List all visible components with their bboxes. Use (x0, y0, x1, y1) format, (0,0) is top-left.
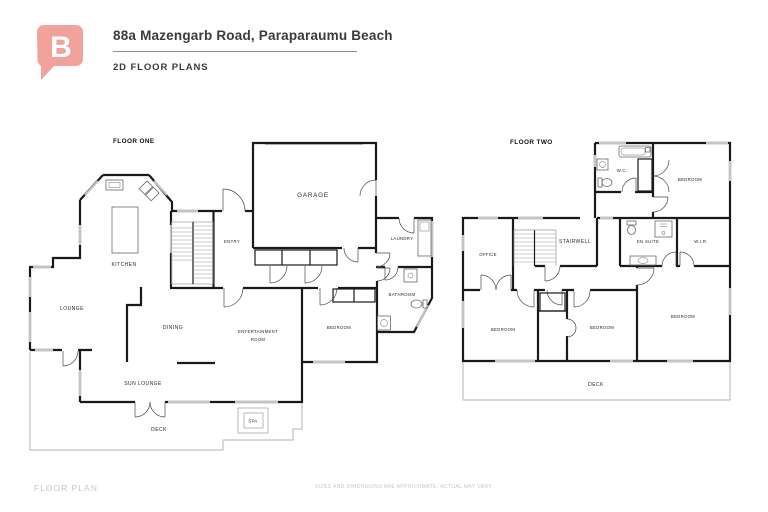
floor-two-label: FLOOR TWO (510, 139, 553, 146)
footer-label: FLOOR PLAN (34, 483, 98, 493)
label-stairwell: STAIRWELL (559, 239, 591, 245)
corridor-closet (255, 250, 337, 265)
label-wc: W.C. (617, 168, 628, 173)
ensuite-vanity-icon (630, 256, 656, 265)
label-deck-one: DECK (151, 427, 167, 433)
floor-two-fixtures (538, 146, 672, 311)
label-wir: W.I.R. (694, 239, 708, 244)
label-office: OFFICE (479, 252, 497, 257)
stove-icon (106, 180, 123, 190)
label-entertainment-2: ROOM (251, 337, 266, 342)
label-spa: SPA (248, 419, 257, 424)
floor-one-windows (30, 145, 432, 403)
label-kitchen: KITCHEN (111, 262, 136, 268)
floor-plan-page: B 88a Mazengarb Road, Paraparaumu Beach … (0, 0, 768, 512)
label-bedroom-left: BEDROOM (491, 327, 515, 332)
label-deck-two: DECK (588, 382, 604, 388)
label-bedroom-right: BEDROOM (671, 314, 695, 319)
wc-closet (638, 159, 652, 191)
label-entertainment-1: ENTERTAINMENT (238, 329, 278, 334)
bathtub-icon (619, 146, 651, 157)
label-garage: GARAGE (297, 192, 329, 199)
floor-one-plan: FLOOR ONE (30, 138, 432, 450)
label-entry: ENTRY (224, 239, 240, 244)
staircase-floor-two (514, 230, 556, 266)
floor-one-interior-walls (127, 211, 432, 363)
label-laundry: LAUNDRY (391, 236, 414, 241)
footer-disclaimer: SIZES AND DIMENSIONS ARE APPROXIMATE, AC… (315, 484, 493, 490)
label-lounge: LOUNGE (60, 306, 84, 312)
shower-icon (655, 221, 672, 237)
floor-plans-drawing: FLOOR ONE (0, 0, 768, 512)
label-bedroom-one: BEDROOM (327, 325, 351, 330)
kitchen-island (112, 207, 138, 253)
wc-sink-icon (597, 159, 608, 170)
deck-outline-two (463, 361, 730, 400)
label-en-suite: EN SUITE (637, 239, 659, 244)
laundry-bench (418, 220, 431, 256)
floor-two-plan: FLOOR TWO (463, 139, 730, 400)
staircase-floor-one (172, 222, 214, 284)
label-bedroom-top: BEDROOM (678, 177, 702, 182)
label-dining: DINING (163, 325, 183, 331)
bedroom-closet (333, 289, 375, 302)
toilet-icon (423, 300, 427, 308)
label-bedroom-mid: BEDROOM (590, 325, 614, 330)
floor-one-label: FLOOR ONE (113, 138, 155, 145)
wc-toilet-icon (598, 178, 612, 187)
ensuite-toilet-icon (627, 221, 636, 235)
vanity-icon (378, 316, 391, 330)
label-bathroom: BATHROOM (389, 292, 416, 297)
label-sun-lounge: SUN LOUNGE (124, 381, 162, 387)
floor-one-walls (30, 143, 432, 402)
